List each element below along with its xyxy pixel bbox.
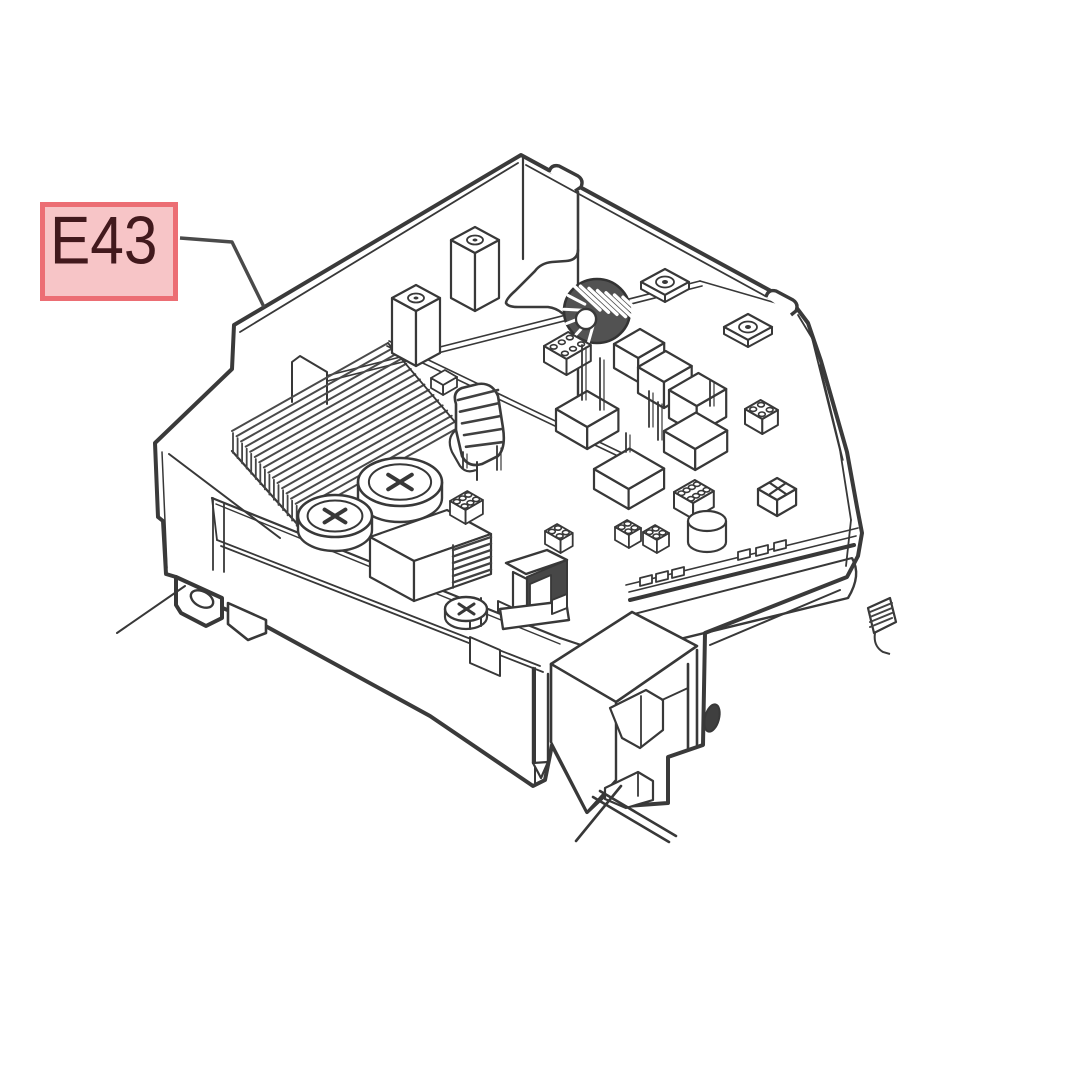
svg-text:E43: E43 xyxy=(50,203,158,279)
